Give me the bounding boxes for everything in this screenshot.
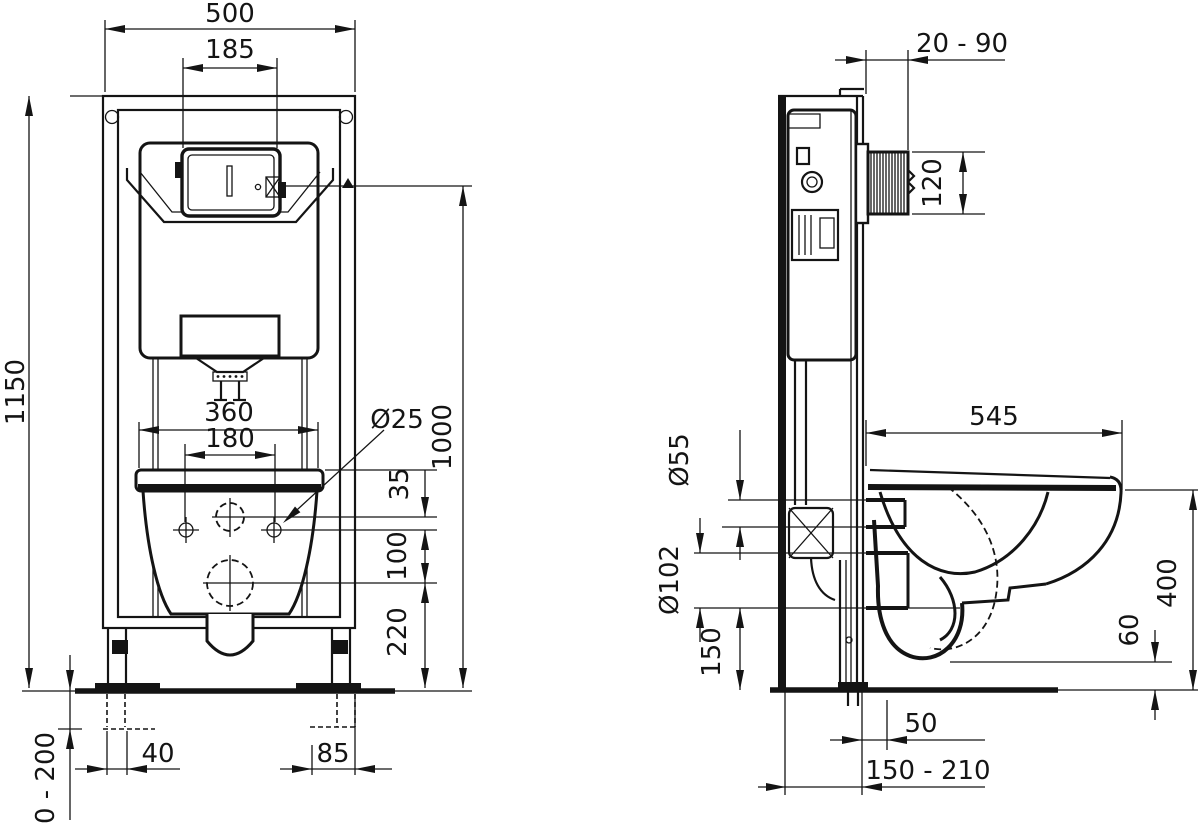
- dim-bolt-spacing: 180: [205, 424, 255, 454]
- box-clip-left: [175, 162, 183, 178]
- bowl-side: [866, 470, 1121, 658]
- dimension-rim-height: 400: [1125, 490, 1198, 690]
- dimension-flushplate-width: 185: [183, 35, 277, 148]
- dimension-outlet-diameter: Ø102: [655, 518, 704, 642]
- dim-wall-finish-range: 20 - 90: [916, 29, 1008, 59]
- dim-outlet-center-height: 150: [697, 627, 727, 677]
- dim-flushplate-width: 185: [205, 35, 255, 65]
- dim-plate-housing-height: 120: [918, 158, 948, 208]
- dimension-drain-wall-range: 150 - 210: [758, 692, 991, 795]
- back-rail: [778, 96, 786, 690]
- label-outlet-diameter: Ø102: [655, 545, 685, 615]
- bowl-slot: [207, 614, 253, 655]
- frame-hole-right: [340, 111, 353, 124]
- dim-actuator-height: 1000: [428, 404, 458, 470]
- label-flushpipe-diameter: Ø55: [665, 433, 695, 487]
- right-bracket: [332, 640, 348, 654]
- technical-drawing: 500 185 1150 360: [0, 0, 1200, 827]
- flush-box-outer: [182, 149, 280, 216]
- dimension-bowl-clearance: 60: [1115, 613, 1159, 720]
- box-clip-right: [278, 182, 286, 198]
- dim-spacing-100: 100: [383, 531, 413, 581]
- dimension-housing-height: 120: [912, 152, 985, 214]
- dim-bowl-floor-clearance: 60: [1115, 613, 1145, 646]
- dim-bowl-depth: 545: [969, 402, 1019, 432]
- frame-hole-left: [106, 111, 119, 124]
- dim-left-foot-offset: 40: [141, 739, 174, 769]
- dimension-flushpipe-diameter: Ø55: [665, 430, 744, 560]
- flush-plate-box: [175, 149, 286, 216]
- dim-drain-wall-range: 150 - 210: [865, 756, 990, 786]
- dim-foot-adjust-range: 0 - 200: [31, 732, 61, 824]
- flush-plate-housing: [856, 144, 914, 223]
- seat-edge: [138, 484, 321, 490]
- dim-rim-height: 400: [1153, 558, 1183, 608]
- label-bolt-diameter: Ø25: [370, 405, 424, 435]
- waste-curve: [811, 558, 835, 600]
- cistern-recess: [181, 316, 279, 356]
- dimension-right-foot: 85: [280, 694, 392, 775]
- dimension-outlet-center-height: 150: [697, 608, 744, 690]
- side-view: 20 - 90 120 545 Ø55: [655, 29, 1198, 795]
- frame-side: [778, 89, 868, 690]
- dim-spacing-35: 35: [385, 467, 415, 500]
- housing-hatch: [868, 152, 908, 214]
- dim-frame-width: 500: [205, 0, 255, 29]
- dim-frame-height: 1150: [1, 359, 31, 425]
- housing-bezel: [856, 144, 868, 223]
- dim-outlet-height: 220: [383, 607, 413, 657]
- dimension-left-foot: 40: [75, 731, 180, 775]
- dim-outlet-wall-offset: 50: [904, 709, 937, 739]
- datum-marker: [342, 178, 354, 188]
- dimension-chain-heights: 35 100 220: [383, 467, 429, 688]
- dimension-foot-adjust: 0 - 200: [31, 655, 82, 824]
- dimension-frame-height: 1150: [1, 96, 103, 688]
- front-view: 500 185 1150 360: [1, 0, 472, 824]
- rim-line: [868, 487, 1116, 488]
- drawing-sheet: 500 185 1150 360: [0, 0, 1200, 827]
- dim-right-foot-offset: 85: [316, 739, 349, 769]
